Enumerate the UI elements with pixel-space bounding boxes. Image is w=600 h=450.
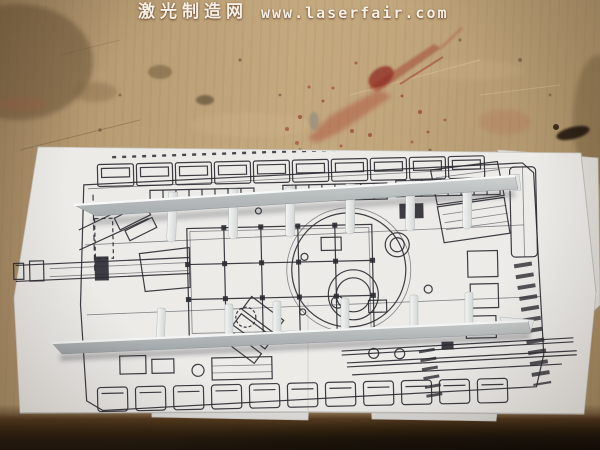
photo-workbench-scene: 激光制造网 www.laserfair.com xyxy=(0,0,600,450)
blueprint-and-parts xyxy=(0,0,600,450)
watermark-site-url: www.laserfair.com xyxy=(261,2,449,23)
watermark-site-name: 激光制造网 xyxy=(138,2,248,22)
watermark: 激光制造网 www.laserfair.com xyxy=(138,2,449,23)
